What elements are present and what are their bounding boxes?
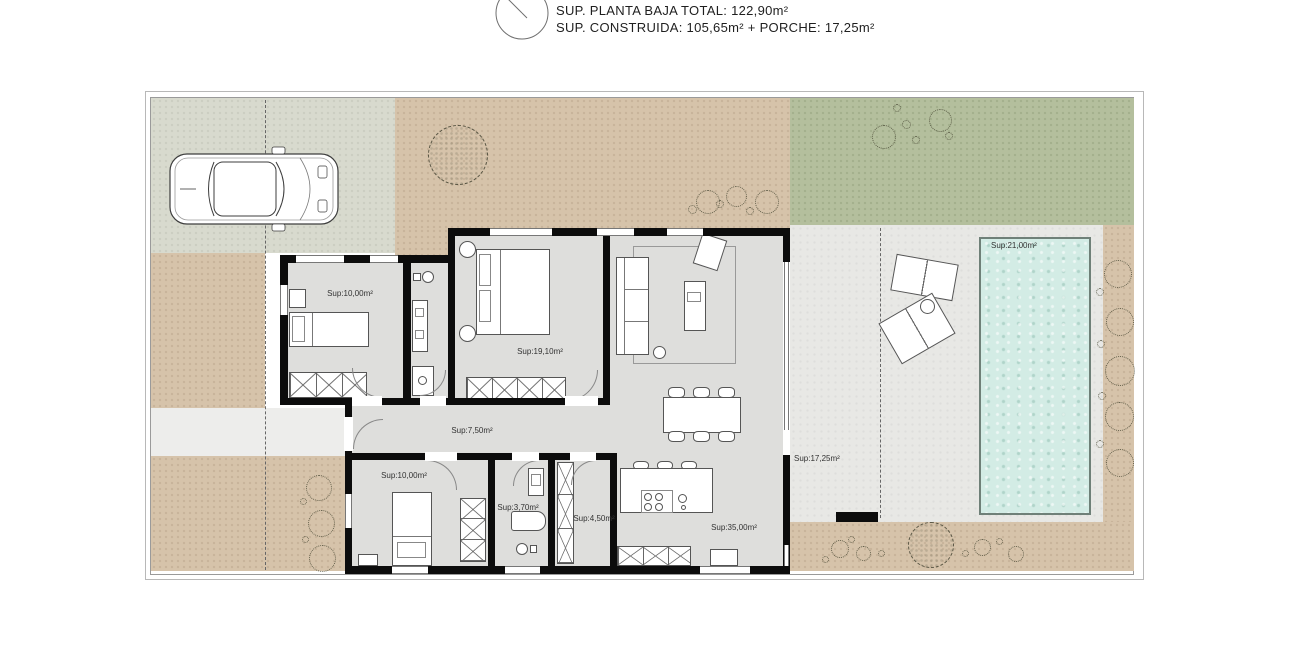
shrub-icon [945, 132, 953, 140]
room-label-laundry: Sup:4,50m² [566, 514, 622, 523]
room-label-porch: Sup:17,25m² [794, 454, 858, 463]
shrub-icon [902, 120, 911, 129]
shrub-icon [1106, 308, 1134, 336]
shrub-icon [856, 546, 871, 561]
floor-plan-canvas: Sup:10,00m² Sup:19,10m² Sup:7,50m² Sup:1… [0, 0, 1291, 650]
wall [403, 263, 411, 398]
room-label-bedroom2: Sup:10,00m² [372, 471, 436, 480]
floor-lamp [653, 346, 666, 359]
shrub-icon [1008, 546, 1024, 562]
shrub-icon [929, 109, 952, 132]
room-label-bathroom2: Sup:3,70m² [490, 503, 546, 512]
shrub-icon [306, 475, 332, 501]
tree-icon [908, 522, 954, 568]
nightstand [358, 554, 378, 566]
door-opening [565, 396, 598, 406]
room-label-pool: Sup:21,00m² [991, 241, 1051, 250]
sofa-cushion-line [625, 321, 648, 322]
pillow [397, 542, 426, 558]
dining-chair [668, 431, 685, 442]
wall [610, 453, 617, 566]
shrub-icon [308, 510, 335, 537]
room-label-master: Sup:19,10m² [508, 347, 572, 356]
wall [448, 236, 455, 398]
window [505, 566, 540, 574]
shrub-icon [872, 125, 896, 149]
shrub-icon [726, 186, 747, 207]
shrub-icon [1096, 288, 1104, 296]
wall [488, 460, 495, 566]
bathtub [511, 511, 546, 531]
lawn-area [790, 98, 1134, 225]
room-label-bedroom1: Sup:10,00m² [318, 289, 382, 298]
shrub-icon [996, 538, 1003, 545]
shrub-icon [716, 200, 724, 208]
room-label-kitchen: Sup:35,00m² [702, 523, 766, 532]
door-opening [352, 396, 382, 406]
toilet-tank [413, 273, 421, 281]
burner [655, 503, 663, 511]
sofa [616, 257, 649, 355]
north-compass-icon [493, 0, 551, 42]
shrub-icon [822, 556, 829, 563]
wall [783, 228, 790, 262]
shrub-icon [688, 205, 697, 214]
header-built-area: SUP. CONSTRUIDA: 105,65m² + PORCHE: 17,2… [556, 20, 875, 35]
window [700, 566, 750, 574]
room-label-hallway: Sup:7,50m² [442, 426, 502, 435]
shrub-icon [1098, 392, 1106, 400]
window [296, 255, 344, 263]
shrub-icon [974, 539, 991, 556]
sink [415, 330, 424, 339]
window [784, 545, 789, 566]
shrub-icon [755, 190, 779, 214]
toilet [516, 543, 528, 555]
porch-wall-stub [836, 512, 878, 522]
shrub-icon [309, 545, 336, 572]
sofa-backrest-line [624, 258, 625, 354]
entry-walkway [151, 408, 350, 456]
tv-unit [684, 281, 706, 331]
shrub-icon [962, 550, 969, 557]
tv-unit-shelf [687, 292, 701, 302]
shrub-icon [893, 104, 901, 112]
burner [644, 493, 652, 501]
shrub-icon [831, 540, 849, 558]
kitchen-sink-cabinet [710, 549, 738, 566]
shrub-icon [1104, 260, 1132, 288]
gravel-area-left [151, 253, 265, 408]
shrub-icon [1105, 402, 1134, 431]
burner [655, 493, 663, 501]
shrub-icon [746, 207, 754, 215]
shrub-icon [302, 536, 309, 543]
window [490, 228, 552, 236]
shrub-icon [300, 498, 307, 505]
car-top-view-icon [168, 146, 340, 232]
shrub-icon [878, 550, 885, 557]
nightstand-round [459, 325, 476, 342]
window [667, 228, 703, 236]
bed-line [312, 313, 313, 346]
porch-dashed-line [880, 228, 881, 518]
pillow [479, 290, 491, 322]
wardrobe [460, 498, 486, 562]
door-opening [512, 452, 539, 461]
shrub-icon [1096, 440, 1104, 448]
door-opening [570, 452, 596, 461]
shrub-icon [848, 536, 855, 543]
header-total-area: SUP. PLANTA BAJA TOTAL: 122,90m² [556, 3, 788, 18]
window [280, 285, 288, 315]
shrub-icon [912, 136, 920, 144]
door-opening [425, 452, 457, 461]
door-opening [344, 417, 353, 451]
window [392, 566, 428, 574]
island-sink [678, 494, 687, 503]
island-sink-faucet [681, 505, 686, 510]
nightstand-round [459, 241, 476, 258]
wall [280, 255, 288, 405]
dining-chair [693, 431, 710, 442]
door-opening [420, 396, 446, 406]
wall [548, 460, 555, 566]
kitchen-cabinets [617, 546, 691, 566]
window [597, 228, 634, 236]
swimming-pool [979, 237, 1091, 515]
pillow [292, 316, 305, 342]
dining-chair [718, 431, 735, 442]
shrub-icon [1106, 449, 1134, 477]
pillow [479, 254, 491, 286]
nightstand [289, 289, 306, 308]
dining-table [663, 397, 741, 433]
tree-icon [428, 125, 488, 185]
side-table [920, 299, 935, 314]
toilet [422, 271, 434, 283]
window [370, 255, 398, 263]
sliding-glass-door [784, 262, 789, 430]
shrub-icon [1105, 356, 1135, 386]
burner [644, 503, 652, 511]
gravel-area-jog [395, 228, 452, 258]
shrub-icon [1097, 340, 1105, 348]
bed-line [393, 536, 431, 537]
toilet-tank [530, 545, 537, 553]
wall [603, 236, 610, 398]
sofa-cushion-line [625, 289, 648, 290]
bed-line [500, 250, 501, 334]
sink [415, 308, 424, 317]
window [345, 494, 352, 528]
